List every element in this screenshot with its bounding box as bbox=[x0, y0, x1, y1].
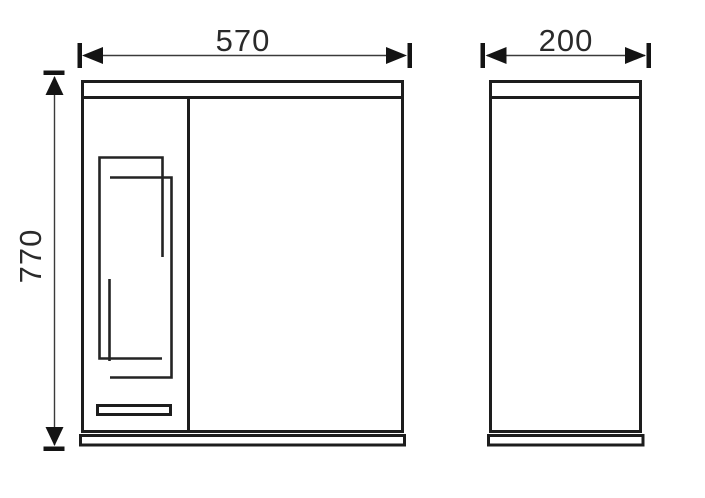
front-door-decor bbox=[100, 158, 172, 378]
front-height-bottom-stop-bar bbox=[44, 447, 65, 452]
front-plinth bbox=[81, 436, 405, 446]
front-width-right-arrowhead bbox=[386, 47, 407, 64]
front-body-outline bbox=[83, 82, 403, 432]
front-width-left-arrowhead bbox=[82, 47, 103, 64]
technical-drawing-canvas: 570 770 200 bbox=[0, 0, 705, 498]
front-width-right-stop-bar bbox=[408, 43, 413, 68]
front-height-top-arrowhead bbox=[46, 76, 64, 95]
side-depth-right-stop-bar bbox=[647, 43, 652, 68]
side-depth-right-arrowhead bbox=[625, 47, 646, 64]
front-handle-slot bbox=[98, 406, 171, 415]
front-width-label: 570 bbox=[216, 23, 271, 58]
side-depth-left-stop-bar bbox=[481, 43, 486, 68]
side-plinth bbox=[489, 436, 644, 446]
side-depth-left-arrowhead bbox=[486, 47, 507, 64]
side-depth-dimension: 200 bbox=[481, 23, 652, 68]
side-depth-label: 200 bbox=[539, 23, 594, 58]
side-body-outline bbox=[491, 82, 641, 432]
front-view bbox=[81, 82, 405, 446]
side-view bbox=[489, 82, 644, 446]
front-height-dimension: 770 bbox=[13, 71, 65, 452]
technical-drawing-page: 570 770 200 bbox=[0, 0, 705, 498]
front-width-left-stop-bar bbox=[78, 43, 83, 68]
front-width-dimension: 570 bbox=[78, 23, 413, 68]
front-height-label: 770 bbox=[13, 229, 48, 284]
front-height-bottom-arrowhead bbox=[46, 427, 64, 446]
front-height-top-stop-bar bbox=[44, 71, 65, 76]
